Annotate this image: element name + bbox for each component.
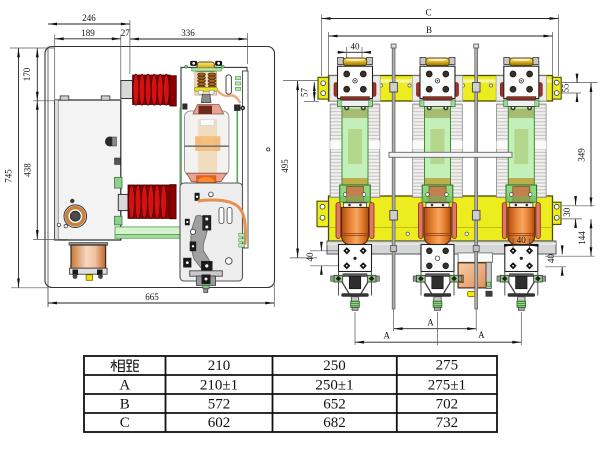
svg-text:250: 250 [323, 358, 346, 374]
svg-text:745: 745 [4, 169, 14, 183]
svg-text:C: C [120, 415, 130, 431]
svg-text:C: C [425, 8, 431, 18]
svg-text:246: 246 [82, 13, 96, 23]
svg-text:602: 602 [208, 415, 231, 431]
svg-text:210±1: 210±1 [200, 378, 238, 394]
svg-text:A: A [119, 378, 130, 394]
svg-text:275: 275 [436, 358, 459, 374]
svg-text:57: 57 [300, 88, 310, 98]
svg-text:170: 170 [22, 67, 32, 81]
svg-text:732: 732 [436, 415, 459, 431]
svg-text:682: 682 [323, 415, 346, 431]
svg-text:210: 210 [208, 358, 231, 374]
svg-text:A: A [383, 331, 390, 341]
svg-text:A: A [478, 330, 485, 340]
svg-text:27: 27 [121, 28, 131, 38]
svg-text:40: 40 [305, 252, 315, 262]
svg-text:275±1: 275±1 [428, 378, 466, 394]
svg-text:55: 55 [561, 83, 571, 93]
svg-text:189: 189 [81, 28, 95, 38]
svg-text:B: B [120, 397, 130, 413]
svg-text:40: 40 [517, 235, 527, 245]
svg-text:B: B [426, 25, 432, 35]
svg-text:572: 572 [208, 397, 231, 413]
svg-text:40: 40 [546, 254, 556, 264]
svg-text:665: 665 [145, 292, 159, 302]
svg-text:495: 495 [280, 159, 290, 173]
svg-text:702: 702 [436, 397, 459, 413]
svg-text:30: 30 [562, 207, 572, 217]
svg-text:250±1: 250±1 [315, 378, 353, 394]
svg-text:144: 144 [577, 231, 587, 245]
svg-text:336: 336 [181, 28, 195, 38]
svg-text:40: 40 [351, 42, 361, 52]
svg-text:A: A [427, 318, 434, 328]
svg-text:652: 652 [323, 397, 346, 413]
svg-text:438: 438 [23, 163, 33, 177]
svg-text:349: 349 [577, 148, 587, 162]
